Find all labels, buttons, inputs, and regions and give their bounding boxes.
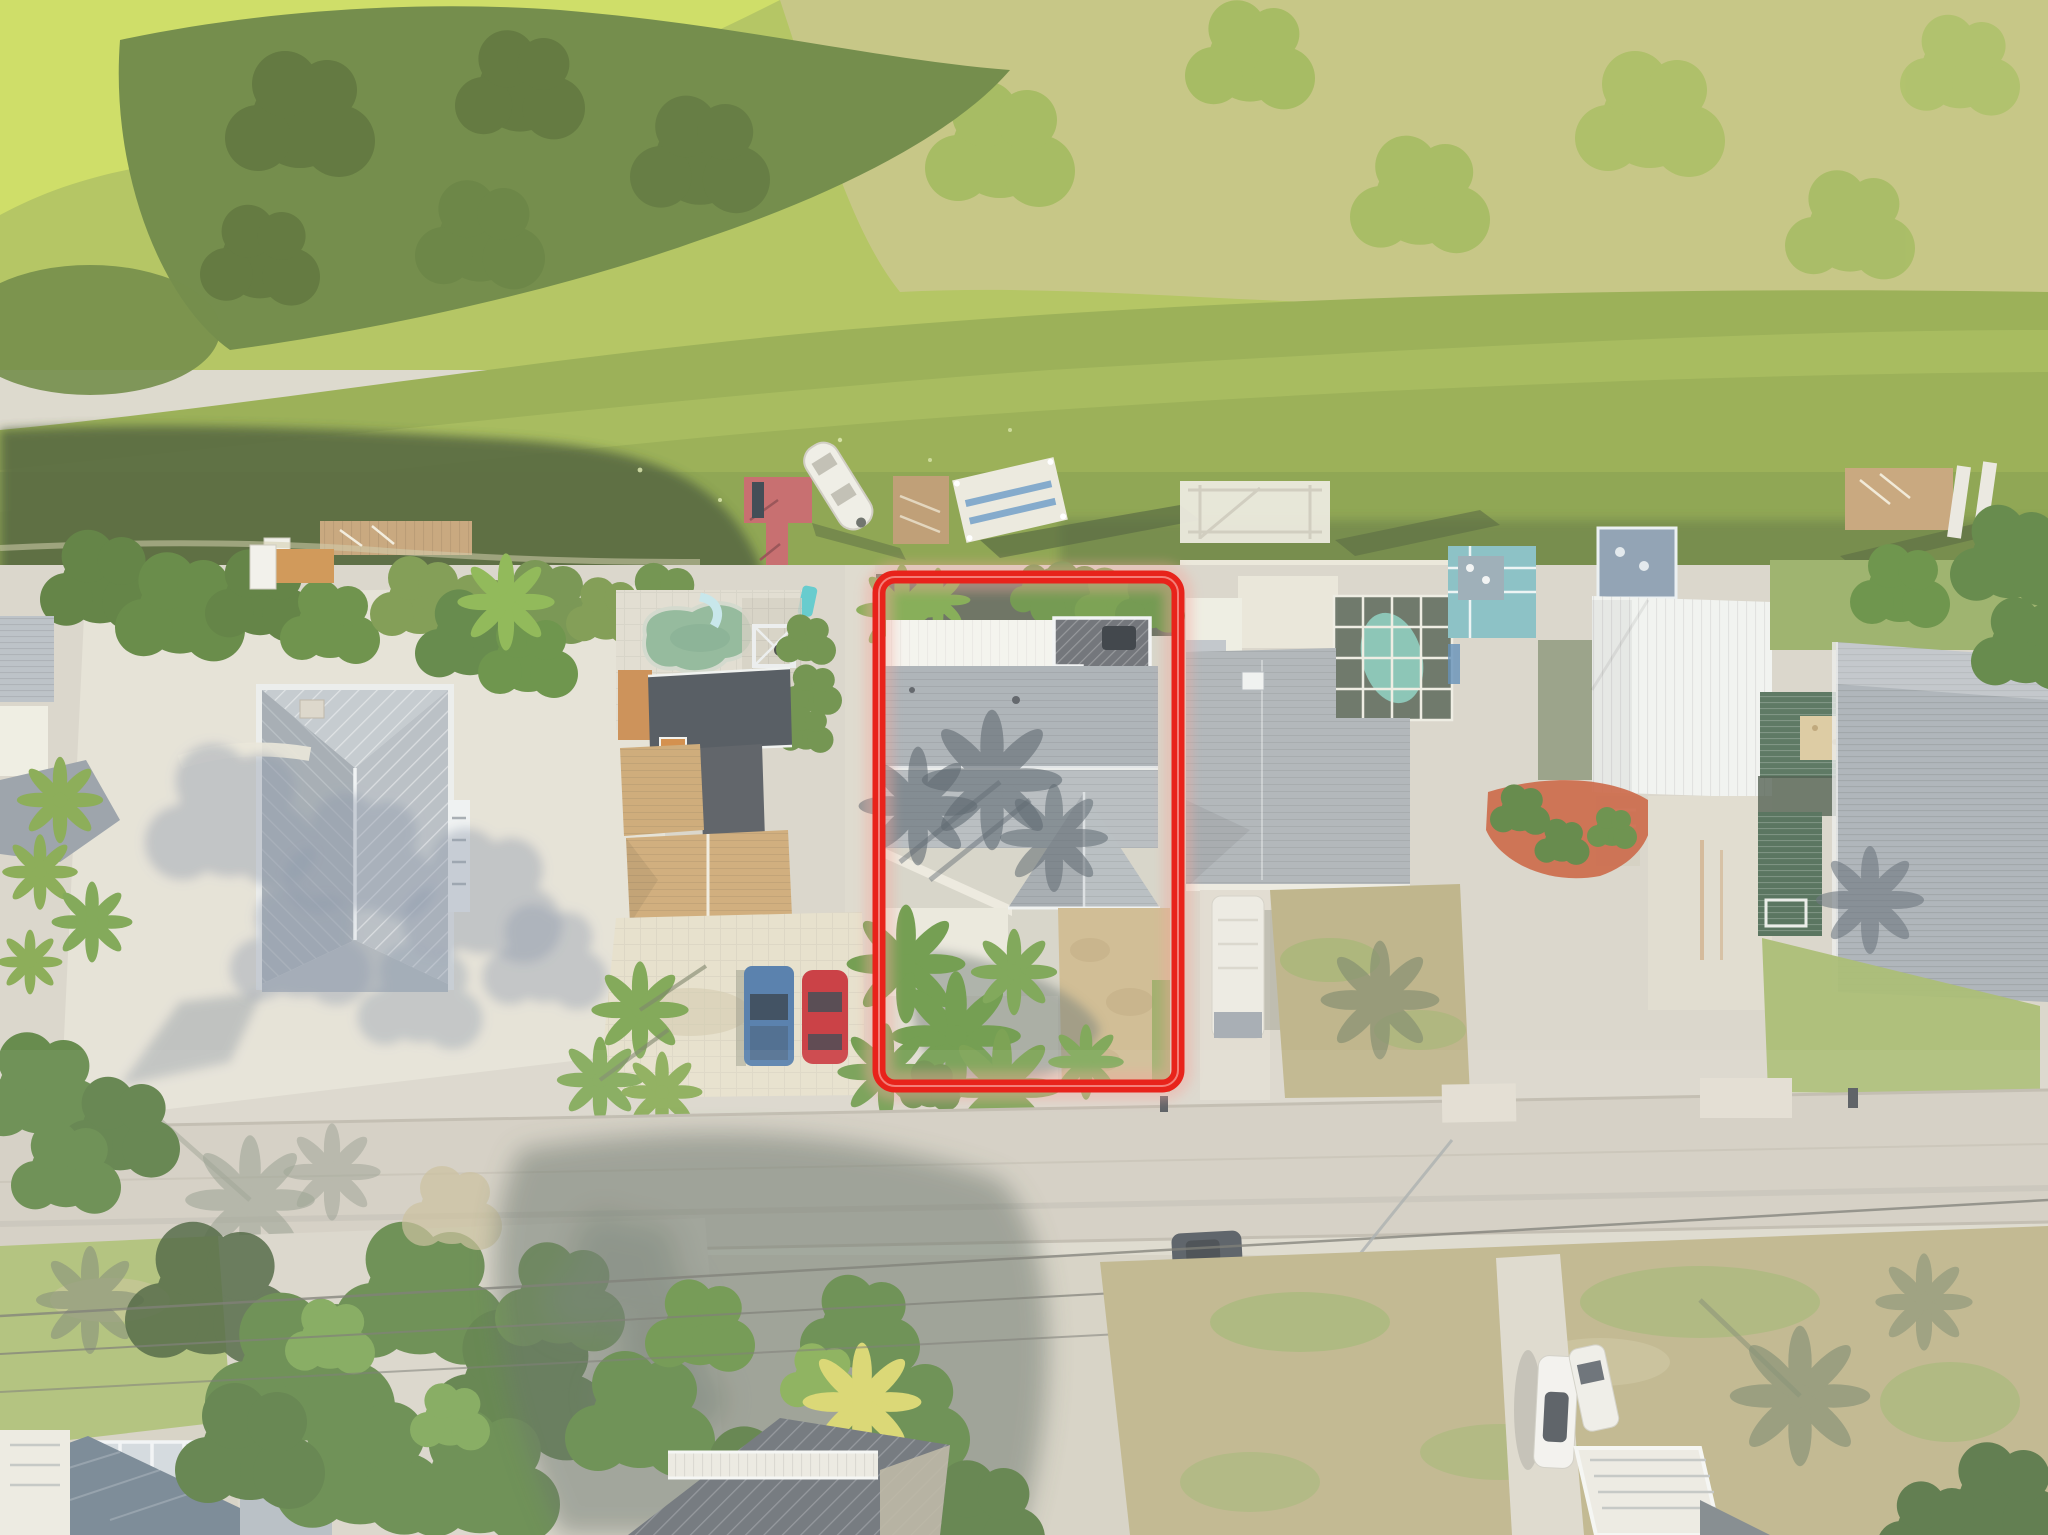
aerial-photo — [0, 0, 2048, 1535]
haze-overlay-lower — [0, 1050, 2048, 1535]
